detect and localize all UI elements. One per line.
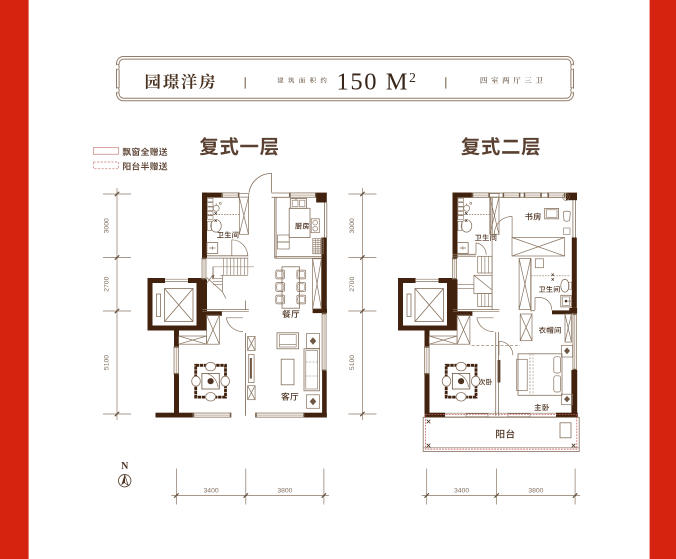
- svg-text:5100: 5100: [104, 355, 111, 370]
- svg-text:2700: 2700: [104, 276, 111, 291]
- svg-text:3800: 3800: [277, 488, 292, 495]
- svg-text:3800: 3800: [528, 488, 543, 495]
- svg-text:3400: 3400: [454, 488, 469, 495]
- svg-text:2700: 2700: [349, 276, 356, 291]
- svg-text:5100: 5100: [349, 355, 356, 370]
- svg-text:3400: 3400: [204, 488, 219, 495]
- svg-text:3000: 3000: [349, 218, 356, 233]
- svg-text:N: N: [121, 461, 129, 472]
- svg-text:3000: 3000: [104, 218, 111, 233]
- svg-text:150 M2: 150 M2: [337, 69, 418, 96]
